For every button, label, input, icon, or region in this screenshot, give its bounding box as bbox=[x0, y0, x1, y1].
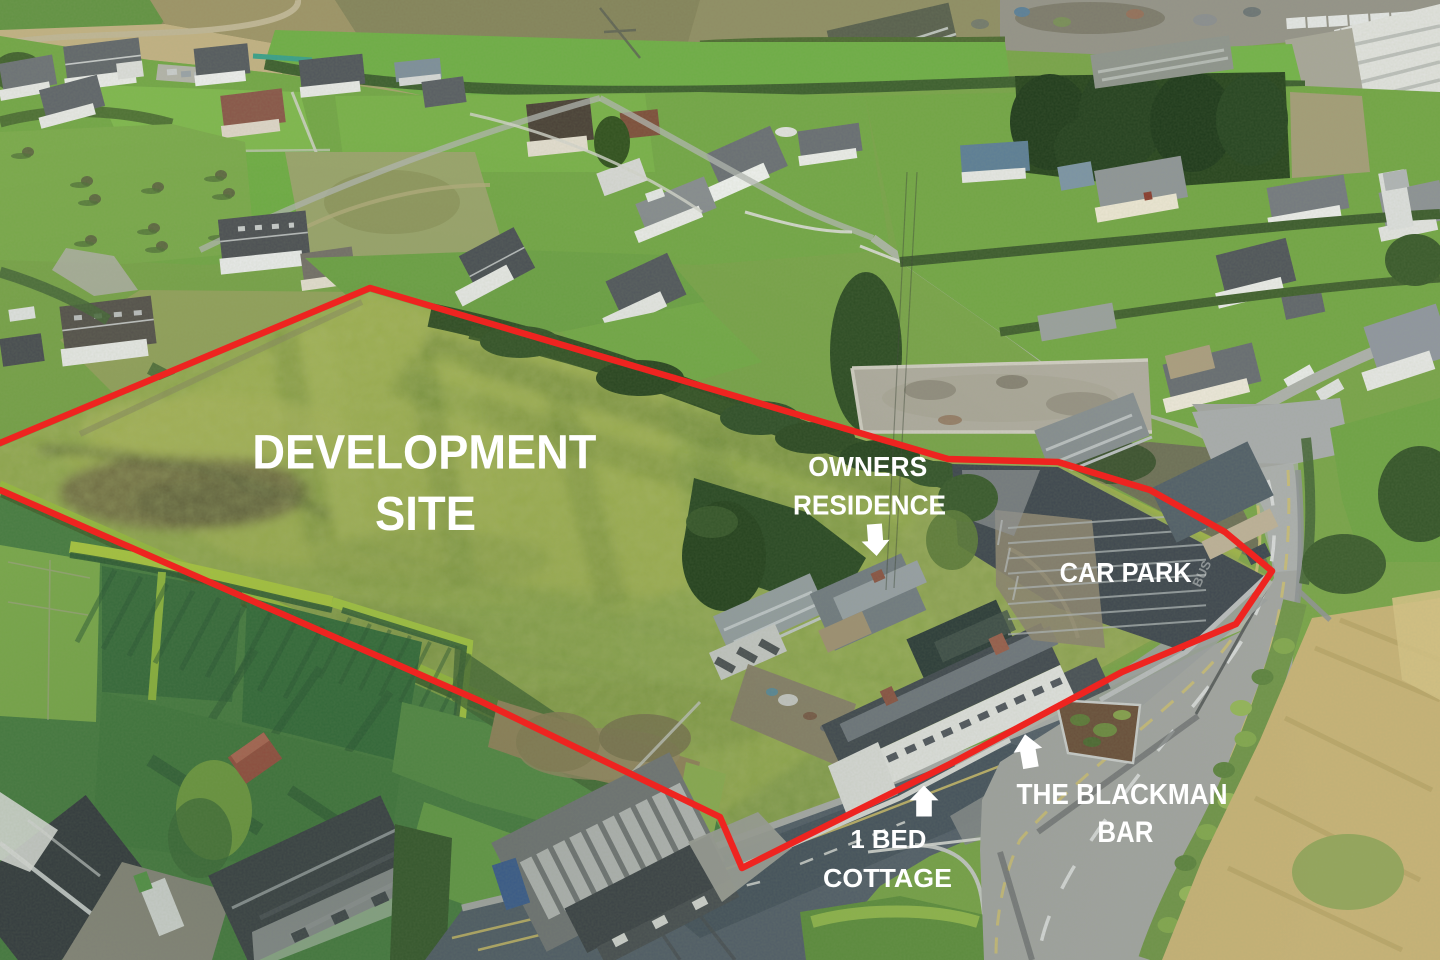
svg-text:CAR PARK: CAR PARK bbox=[1060, 557, 1192, 588]
svg-text:SITE: SITE bbox=[375, 488, 476, 541]
svg-text:DEVELOPMENT: DEVELOPMENT bbox=[252, 427, 596, 480]
svg-text:COTTAGE: COTTAGE bbox=[823, 863, 952, 893]
svg-text:1 BED: 1 BED bbox=[850, 826, 926, 854]
svg-text:RESIDENCE: RESIDENCE bbox=[793, 489, 946, 520]
svg-text:THE BLACKMAN: THE BLACKMAN bbox=[1017, 779, 1228, 811]
svg-text:BAR: BAR bbox=[1097, 816, 1153, 849]
svg-text:OWNERS: OWNERS bbox=[808, 451, 927, 482]
